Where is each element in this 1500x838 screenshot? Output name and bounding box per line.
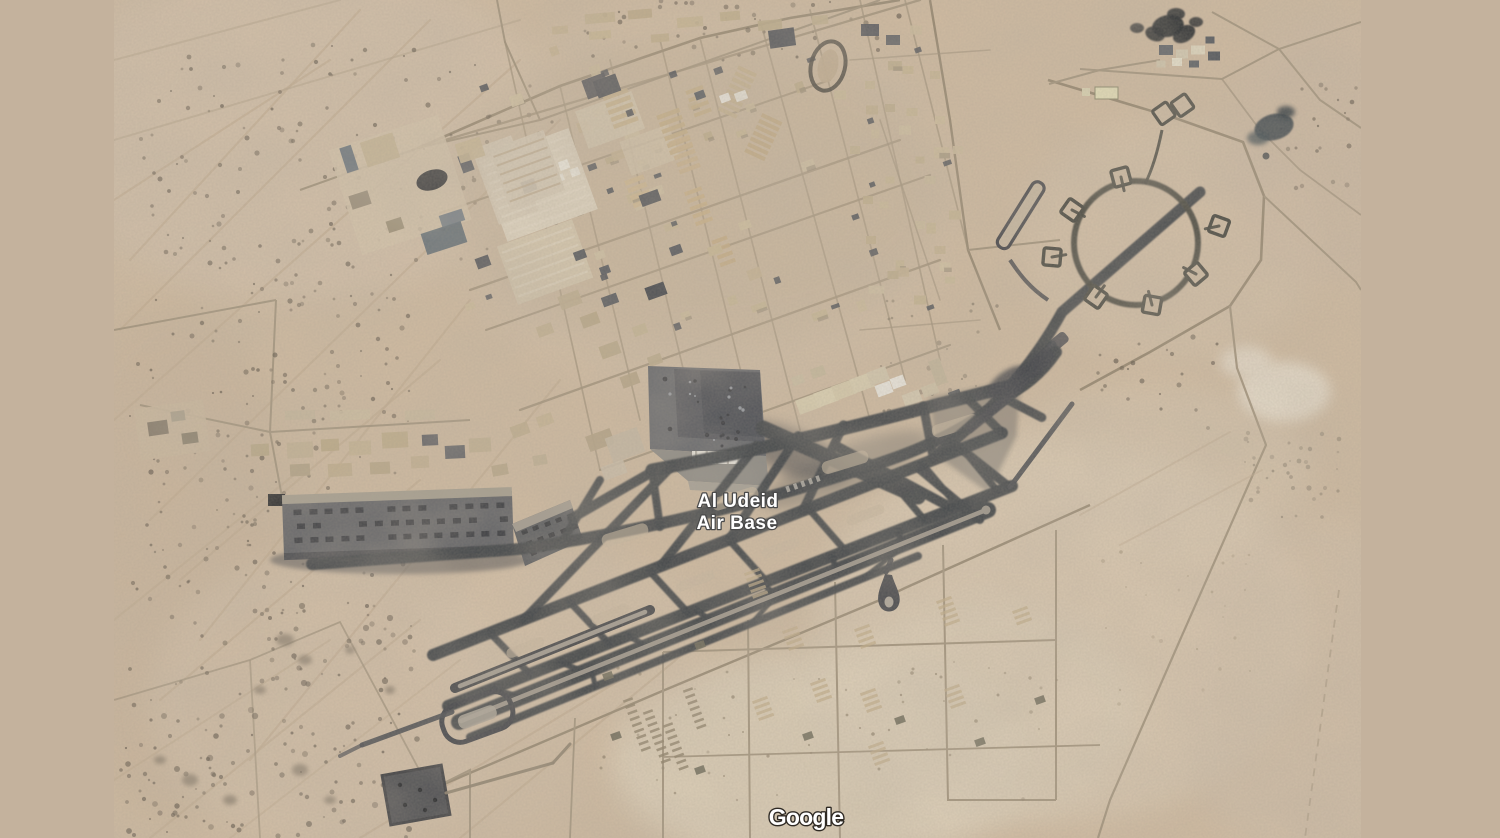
svg-text:Google: Google: [769, 804, 843, 830]
svg-text:Air Base: Air Base: [696, 513, 777, 534]
svg-text:Al Udeid: Al Udeid: [697, 491, 778, 512]
